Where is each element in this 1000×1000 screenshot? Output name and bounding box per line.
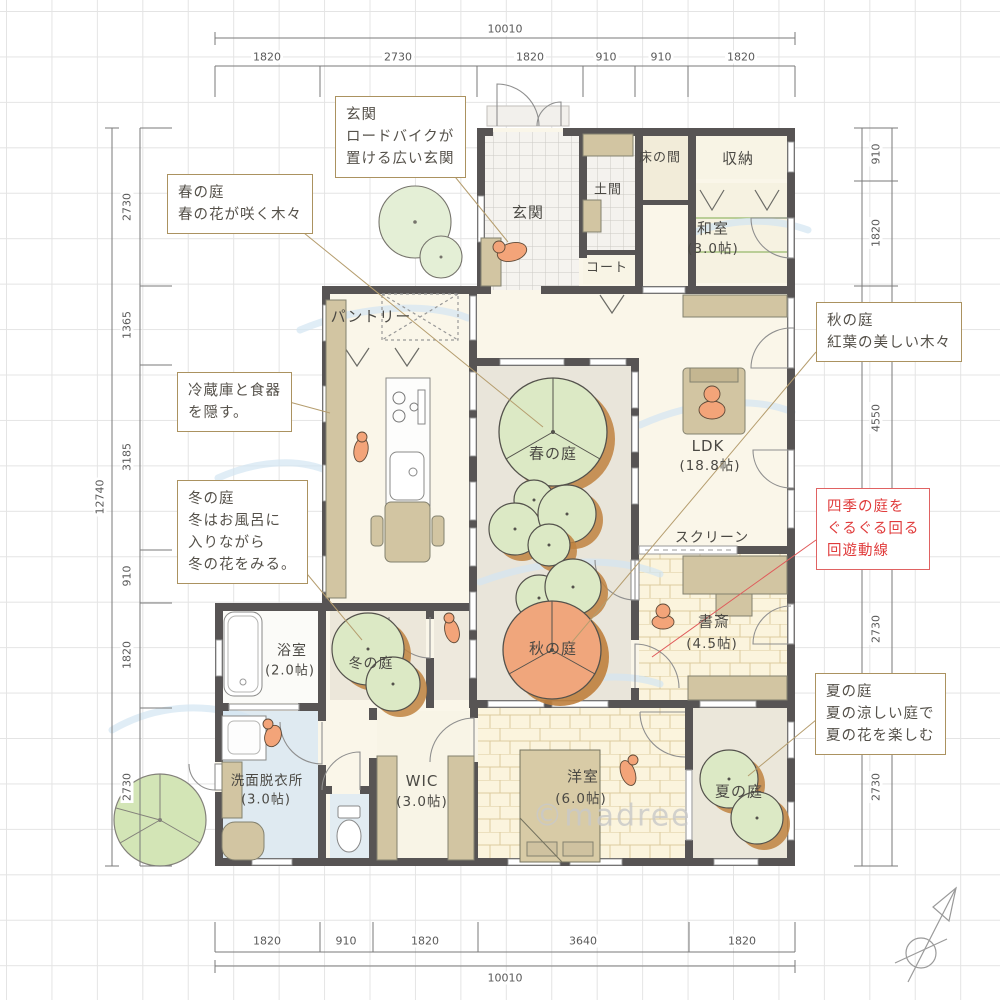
- winter-note-line: 入りながら: [188, 532, 297, 554]
- washitsu-size: (3.0帖): [687, 237, 739, 257]
- dim-top-3: 910: [594, 51, 619, 64]
- spring-garden-label: 春の庭: [529, 443, 577, 464]
- autumn-note-line: 秋の庭: [827, 310, 951, 332]
- dining-chair: [432, 516, 444, 546]
- winter-note-line: 冬の庭: [188, 488, 297, 510]
- madree-watermark: ©madree: [532, 799, 691, 834]
- kitchen-sink: [390, 452, 424, 500]
- washroom-label: 洗面脱衣所: [231, 769, 304, 789]
- fridge-note-line: を隠す。: [188, 402, 281, 424]
- stove-panel: [418, 390, 425, 424]
- genkan-note-line: 置ける広い玄関: [346, 148, 455, 170]
- dim-left-0: 2730: [121, 191, 134, 223]
- dim-right-0: 910: [870, 142, 883, 167]
- shoe-cabinet: [583, 200, 601, 232]
- dim-left-2: 3185: [121, 441, 134, 473]
- summer-note-line: 夏の庭: [826, 681, 935, 703]
- shoe-cabinet: [583, 134, 633, 156]
- ldk-chair-back: [690, 368, 738, 382]
- summer-garden-note: 夏の庭 夏の涼しい庭で 夏の花を楽しむ: [815, 673, 946, 755]
- toilet-bowl: [337, 820, 361, 852]
- wic-wardrobe: [448, 756, 474, 860]
- dim-left-1: 1365: [121, 309, 134, 341]
- screen-label: スクリーン: [675, 527, 749, 547]
- dim-top-2: 1820: [514, 51, 546, 64]
- compass-icon: [895, 888, 956, 982]
- dim-top-total: 10010: [486, 23, 525, 36]
- screen-partition: [639, 546, 737, 554]
- circulation-note-line: 四季の庭を: [827, 496, 919, 518]
- tv-board: [683, 295, 787, 317]
- dim-left-3: 910: [121, 564, 134, 589]
- dim-right-3: 2730: [870, 613, 883, 645]
- dim-left-5: 2730: [121, 771, 134, 803]
- dim-right-2: 4550: [870, 402, 883, 434]
- study-label: 書斎: [698, 611, 730, 632]
- dim-top-5: 1820: [725, 51, 757, 64]
- ldk-label: LDK: [692, 437, 725, 455]
- winter-note-line: 冬はお風呂に: [188, 510, 297, 532]
- autumn-garden-label: 秋の庭: [529, 638, 577, 659]
- dim-right-1: 1820: [870, 217, 883, 249]
- genkan-note-line: 玄関: [346, 104, 455, 126]
- genkan-label: 玄関: [512, 202, 544, 223]
- doma-label: 土間: [594, 179, 622, 198]
- bedroom-label: 洋室: [567, 766, 599, 787]
- tokonoma-label: 床の間: [639, 147, 681, 166]
- dim-top-0: 1820: [251, 51, 283, 64]
- pantry-label: パントリー: [331, 306, 412, 327]
- sliding-door: [229, 704, 299, 710]
- winter-garden-note: 冬の庭 冬はお風呂に 入りながら 冬の花をみる。: [177, 480, 308, 584]
- faucet: [409, 468, 417, 476]
- genkan-note-line: ロードバイクが: [346, 126, 455, 148]
- bathtub: [224, 612, 262, 696]
- genkan-note: 玄関 ロードバイクが 置ける広い玄関: [335, 96, 466, 178]
- dim-top-4: 910: [649, 51, 674, 64]
- dining-table: [385, 502, 430, 562]
- autumn-note-line: 紅葉の美しい木々: [827, 332, 951, 354]
- winter-note-line: 冬の花をみる。: [188, 554, 297, 576]
- dim-left-total: 12740: [94, 478, 107, 517]
- tree-entrance: [379, 186, 462, 278]
- spring-note-line: 春の花が咲く木々: [178, 204, 302, 226]
- ldk-size: (18.8帖): [679, 454, 740, 474]
- bed-pillow: [527, 842, 557, 856]
- washitsu-label: 和室: [697, 218, 729, 239]
- circulation-note-line: ぐるぐる回る: [827, 518, 919, 540]
- bed-pillow: [563, 842, 593, 856]
- summer-note-line: 夏の涼しい庭で: [826, 703, 935, 725]
- circulation-note-line: 回遊動線: [827, 540, 919, 562]
- storage-label: 収納: [722, 148, 754, 169]
- winter-garden-label: 冬の庭: [349, 653, 394, 673]
- summer-note-line: 夏の花を楽しむ: [826, 725, 935, 747]
- dim-left-4: 1820: [121, 639, 134, 671]
- dim-right-4: 2730: [870, 771, 883, 803]
- wic-size: (3.0帖): [396, 790, 448, 810]
- dim-bottom-3: 3640: [567, 935, 599, 948]
- floor-plan-canvas: 玄関 土間 床の間 収納 和室 (3.0帖) コート パントリー LDK (18…: [0, 0, 1000, 1000]
- bathroom-size: (2.0帖): [265, 660, 315, 679]
- summer-garden-label: 夏の庭: [715, 781, 763, 802]
- laundry-basket: [222, 822, 264, 860]
- dim-top-1: 2730: [382, 51, 414, 64]
- dim-bottom-total: 10010: [486, 972, 525, 985]
- spring-garden-note: 春の庭 春の花が咲く木々: [167, 174, 313, 234]
- dining-chair: [371, 516, 383, 546]
- spring-note-line: 春の庭: [178, 182, 302, 204]
- coat-label: コート: [586, 257, 628, 276]
- bathroom-label: 浴室: [277, 640, 307, 660]
- entrance-step: [487, 106, 569, 126]
- dim-bottom-0: 1820: [251, 935, 283, 948]
- autumn-garden-note: 秋の庭 紅葉の美しい木々: [816, 302, 962, 362]
- circulation-note: 四季の庭を ぐるぐる回る 回遊動線: [816, 488, 930, 570]
- study-counter: [688, 676, 787, 700]
- fridge-note: 冷蔵庫と食器 を隠す。: [177, 372, 292, 432]
- study-size: (4.5帖): [686, 632, 738, 652]
- fridge-note-line: 冷蔵庫と食器: [188, 380, 281, 402]
- kitchen-cabinet: [326, 300, 346, 598]
- toilet-tank: [338, 806, 360, 818]
- dim-bottom-4: 1820: [726, 935, 758, 948]
- study-desk: [683, 556, 787, 594]
- tokonoma-floor: [639, 132, 688, 200]
- wic-wardrobe: [377, 756, 397, 860]
- wic-label: WIC: [406, 772, 439, 790]
- dim-bottom-2: 1820: [409, 935, 441, 948]
- dim-bottom-1: 910: [334, 935, 359, 948]
- washroom-size: (3.0帖): [241, 789, 291, 808]
